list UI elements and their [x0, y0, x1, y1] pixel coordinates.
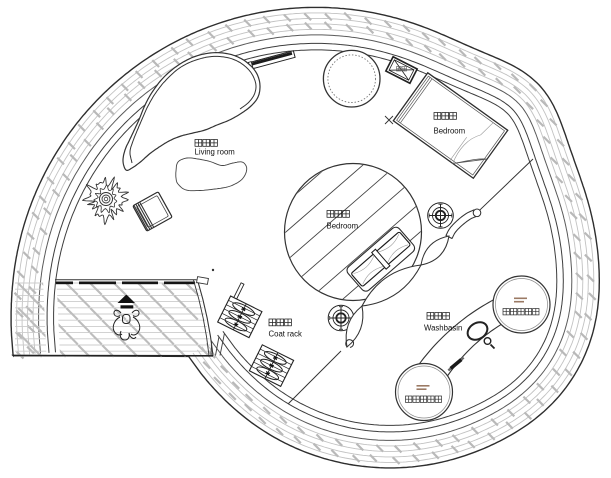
svg-text:Living room: Living room: [195, 148, 235, 157]
svg-text:Bedroom: Bedroom: [327, 222, 359, 231]
svg-text:Coat rack: Coat rack: [269, 330, 302, 339]
svg-text:Bedroom: Bedroom: [434, 127, 466, 136]
svg-text:Washbasin: Washbasin: [424, 324, 462, 333]
